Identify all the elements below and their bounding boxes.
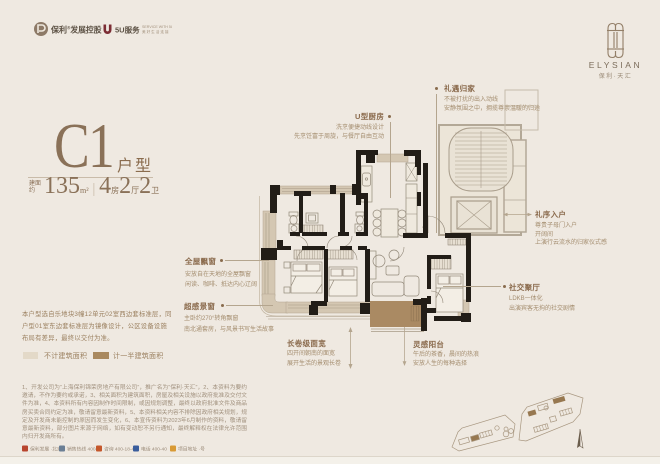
svg-text:项目地址 ·号: 项目地址 ·号 bbox=[178, 446, 205, 453]
svg-text:保利·天汇: 保利·天汇 bbox=[599, 72, 633, 80]
svg-text:5U服务: 5U服务 bbox=[115, 25, 140, 35]
svg-text:保利发展 ·北京: 保利发展 ·北京 bbox=[30, 446, 62, 453]
svg-text:ELYSIAN: ELYSIAN bbox=[589, 60, 642, 70]
svg-text:保利®发展控股: 保利®发展控股 bbox=[50, 25, 102, 35]
svg-text:电话 400-40: 电话 400-40 bbox=[141, 446, 167, 453]
svg-text:咨询 400-18-40: 咨询 400-18-40 bbox=[104, 446, 137, 453]
svg-text:销售热线 400-1: 销售热线 400-1 bbox=[67, 446, 100, 453]
svg-text:SERVICE WITH 5U: SERVICE WITH 5U bbox=[142, 25, 172, 29]
svg-text:美 好 生 活 连 接: 美 好 生 活 连 接 bbox=[142, 29, 169, 34]
